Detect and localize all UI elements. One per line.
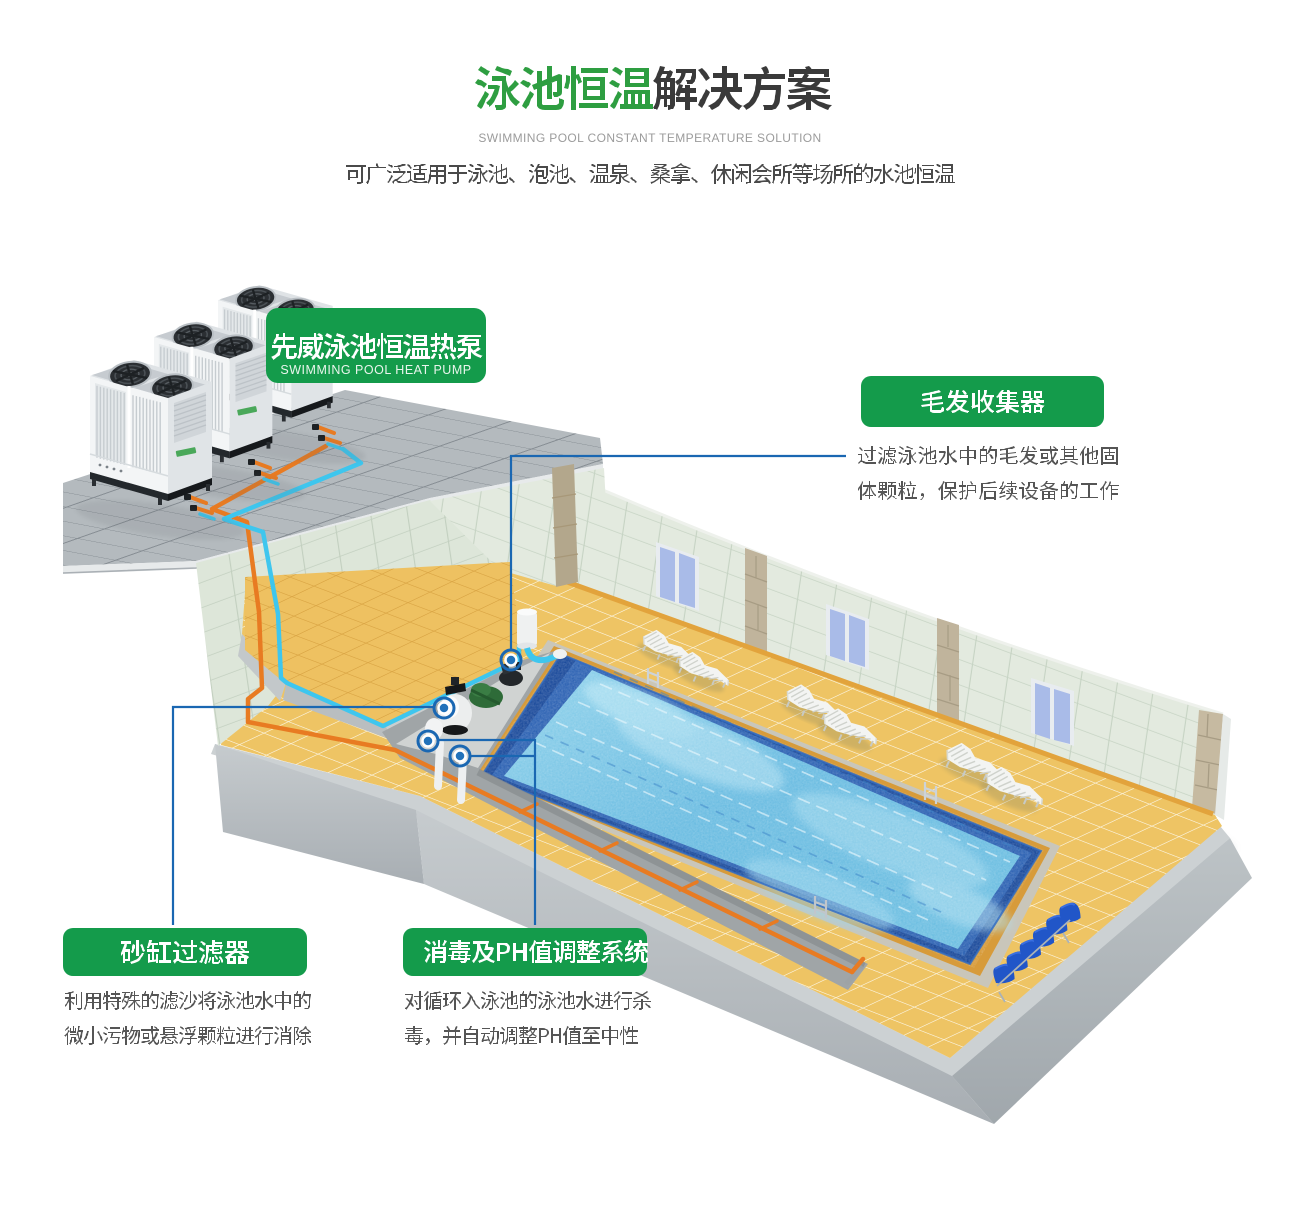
svg-text:SWIMMING POOL HEAT PUMP: SWIMMING POOL HEAT PUMP bbox=[280, 363, 471, 377]
svg-text:SWIMMING POOL CONSTANT TEMPERA: SWIMMING POOL CONSTANT TEMPERATURE SOLUT… bbox=[478, 131, 821, 145]
